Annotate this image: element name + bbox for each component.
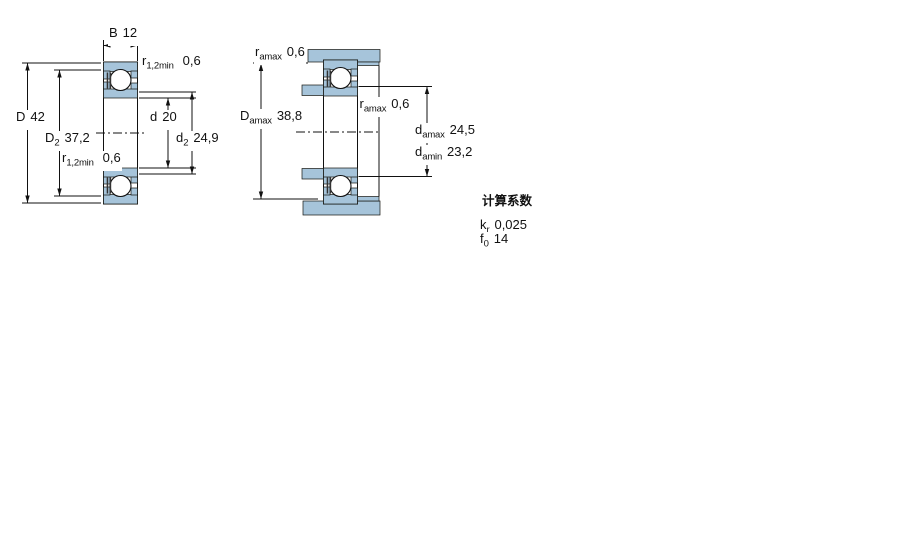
dim-label-shaft-abutment-damax: damax24,5 (414, 123, 476, 143)
calc-factor-f0: f014 (479, 232, 509, 252)
dim-label-width-B: B12 (108, 26, 138, 46)
dim-label-fillet-ramax-top: ramax0,6 (254, 45, 306, 65)
drawing-canvas (0, 0, 900, 560)
dim-label-shoulder-d2: d224,9 (175, 131, 220, 151)
dim-label-outer-diameter-D: D42 (15, 110, 46, 130)
bearing-datasheet-figure: B12 r1,2min0,6 D42 D237,2 r1,2min0,6 d20… (0, 0, 900, 560)
dim-label-fillet-ramax-mid: ramax0,6 (359, 97, 411, 117)
calc-factors-title: 计算系数 (481, 194, 533, 208)
dim-label-housing-abutment-Damax: Damax38,8 (239, 109, 303, 129)
dim-label-chamfer-bottom: r1,2min0,6 (61, 151, 122, 171)
dim-label-shaft-abutment-damin: damin23,2 (414, 145, 473, 165)
dim-label-recess-diameter-D2: D237,2 (44, 131, 91, 151)
dim-label-bore-d: d20 (149, 110, 178, 130)
dim-label-chamfer-top: r1,2min0,6 (141, 54, 202, 74)
mounting-drawing (253, 50, 432, 216)
